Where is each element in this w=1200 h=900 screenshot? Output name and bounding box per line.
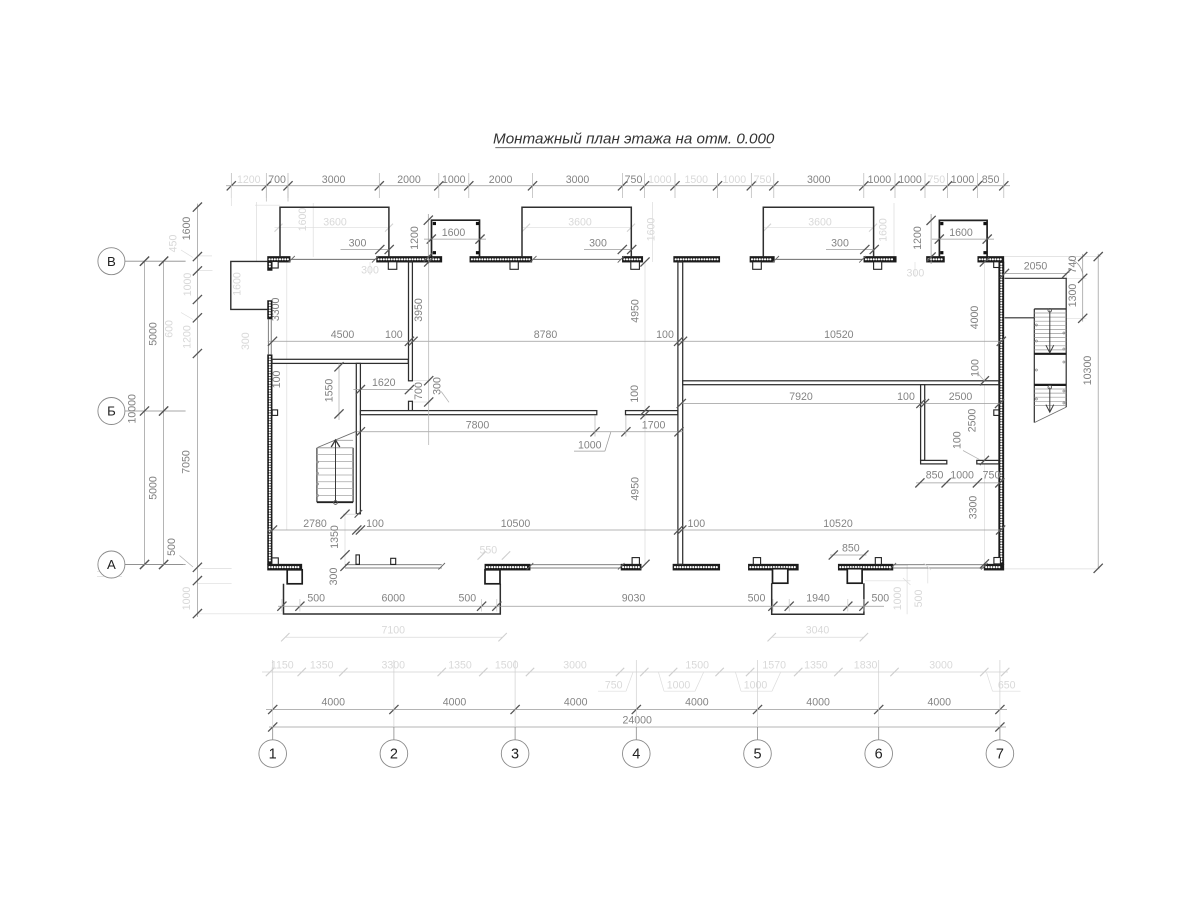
svg-text:500: 500 bbox=[458, 592, 476, 604]
svg-text:1600: 1600 bbox=[646, 218, 658, 242]
svg-text:5000: 5000 bbox=[147, 476, 159, 500]
svg-text:1350: 1350 bbox=[804, 660, 828, 672]
svg-text:1600: 1600 bbox=[297, 208, 309, 232]
svg-text:500: 500 bbox=[871, 592, 889, 604]
svg-text:3040: 3040 bbox=[806, 625, 830, 637]
svg-text:100: 100 bbox=[969, 359, 981, 377]
svg-text:500: 500 bbox=[307, 592, 325, 604]
svg-text:300: 300 bbox=[907, 267, 925, 279]
svg-text:4000: 4000 bbox=[443, 696, 467, 708]
svg-text:100: 100 bbox=[687, 518, 705, 530]
svg-text:7: 7 bbox=[996, 747, 1004, 763]
svg-text:1600: 1600 bbox=[181, 217, 193, 241]
svg-text:1830: 1830 bbox=[854, 660, 878, 672]
svg-text:740: 740 bbox=[1067, 256, 1079, 274]
svg-text:650: 650 bbox=[998, 680, 1016, 692]
svg-text:4950: 4950 bbox=[630, 477, 642, 501]
svg-text:4000: 4000 bbox=[564, 696, 588, 708]
svg-text:1300: 1300 bbox=[1067, 284, 1079, 308]
svg-text:1200: 1200 bbox=[409, 226, 421, 250]
svg-text:1200: 1200 bbox=[237, 174, 261, 186]
svg-text:1350: 1350 bbox=[329, 525, 341, 549]
svg-text:1350: 1350 bbox=[448, 660, 472, 672]
svg-text:1940: 1940 bbox=[806, 592, 830, 604]
svg-text:1000: 1000 bbox=[950, 469, 974, 481]
svg-text:1150: 1150 bbox=[271, 660, 294, 672]
svg-text:7800: 7800 bbox=[466, 420, 490, 432]
svg-text:100: 100 bbox=[271, 370, 283, 388]
svg-text:5000: 5000 bbox=[147, 322, 159, 346]
svg-text:10520: 10520 bbox=[823, 518, 853, 530]
svg-text:100: 100 bbox=[656, 329, 674, 341]
svg-text:2000: 2000 bbox=[397, 174, 421, 186]
svg-text:9030: 9030 bbox=[622, 592, 646, 604]
svg-text:2: 2 bbox=[390, 747, 398, 763]
svg-text:1000: 1000 bbox=[744, 680, 768, 692]
svg-text:5: 5 bbox=[753, 747, 761, 763]
svg-text:Б: Б bbox=[107, 404, 116, 419]
svg-text:2000: 2000 bbox=[489, 174, 513, 186]
svg-text:1: 1 bbox=[269, 747, 277, 763]
svg-text:750: 750 bbox=[754, 174, 772, 186]
svg-text:2500: 2500 bbox=[949, 391, 973, 403]
svg-text:3300: 3300 bbox=[967, 496, 979, 520]
svg-text:1600: 1600 bbox=[232, 272, 244, 296]
svg-text:3000: 3000 bbox=[929, 660, 953, 672]
svg-text:1500: 1500 bbox=[685, 174, 709, 186]
svg-text:3600: 3600 bbox=[808, 216, 832, 228]
svg-text:1000: 1000 bbox=[648, 174, 672, 186]
svg-text:300: 300 bbox=[349, 237, 367, 249]
svg-text:1200: 1200 bbox=[912, 226, 924, 250]
svg-text:1000: 1000 bbox=[898, 174, 922, 186]
svg-text:1350: 1350 bbox=[310, 660, 334, 672]
svg-text:850: 850 bbox=[842, 542, 860, 554]
svg-text:1000: 1000 bbox=[182, 273, 194, 297]
svg-text:1550: 1550 bbox=[323, 379, 335, 403]
svg-text:300: 300 bbox=[240, 332, 252, 350]
svg-text:750: 750 bbox=[605, 680, 623, 692]
svg-text:1000: 1000 bbox=[951, 174, 975, 186]
svg-text:3000: 3000 bbox=[566, 174, 590, 186]
svg-text:100: 100 bbox=[897, 391, 915, 403]
svg-text:4: 4 bbox=[632, 747, 640, 763]
svg-text:1000: 1000 bbox=[723, 174, 747, 186]
svg-text:1000: 1000 bbox=[868, 174, 892, 186]
svg-text:4000: 4000 bbox=[322, 696, 346, 708]
svg-text:500: 500 bbox=[748, 592, 766, 604]
svg-text:3: 3 bbox=[511, 747, 519, 763]
svg-text:500: 500 bbox=[913, 590, 925, 608]
svg-text:2500: 2500 bbox=[967, 409, 979, 433]
svg-text:1700: 1700 bbox=[642, 419, 666, 431]
svg-text:1600: 1600 bbox=[949, 227, 973, 239]
svg-text:4000: 4000 bbox=[685, 696, 709, 708]
svg-text:7050: 7050 bbox=[181, 450, 193, 474]
svg-text:7920: 7920 bbox=[789, 391, 813, 403]
svg-text:600: 600 bbox=[164, 320, 176, 338]
svg-text:1620: 1620 bbox=[372, 377, 396, 389]
svg-text:700: 700 bbox=[268, 174, 286, 186]
svg-text:3000: 3000 bbox=[563, 660, 587, 672]
svg-text:10520: 10520 bbox=[824, 329, 854, 341]
svg-text:100: 100 bbox=[952, 431, 964, 449]
svg-text:10000: 10000 bbox=[127, 394, 139, 424]
svg-text:850: 850 bbox=[926, 469, 944, 481]
svg-text:1200: 1200 bbox=[181, 325, 193, 349]
svg-text:750: 750 bbox=[927, 174, 945, 186]
svg-text:100: 100 bbox=[629, 385, 641, 403]
svg-text:1600: 1600 bbox=[442, 227, 466, 239]
svg-text:4000: 4000 bbox=[969, 306, 981, 330]
svg-text:7100: 7100 bbox=[382, 625, 406, 637]
svg-text:3000: 3000 bbox=[322, 174, 346, 186]
svg-text:8780: 8780 bbox=[534, 329, 558, 341]
svg-text:300: 300 bbox=[589, 237, 607, 249]
svg-text:300: 300 bbox=[328, 568, 340, 586]
svg-text:4500: 4500 bbox=[331, 329, 355, 341]
svg-text:750: 750 bbox=[625, 174, 643, 186]
svg-text:3600: 3600 bbox=[323, 216, 347, 228]
svg-text:700: 700 bbox=[413, 382, 425, 400]
svg-text:850: 850 bbox=[982, 174, 1000, 186]
svg-text:Монтажный план этажа на отм. 0: Монтажный план этажа на отм. 0.000 bbox=[493, 130, 775, 147]
svg-text:100: 100 bbox=[385, 329, 403, 341]
svg-text:6: 6 bbox=[875, 747, 883, 763]
svg-text:1000: 1000 bbox=[181, 587, 193, 611]
svg-text:6000: 6000 bbox=[382, 592, 406, 604]
svg-text:2050: 2050 bbox=[1024, 260, 1048, 272]
svg-text:4000: 4000 bbox=[806, 696, 830, 708]
svg-text:24000: 24000 bbox=[622, 715, 652, 727]
svg-text:3600: 3600 bbox=[568, 216, 592, 228]
svg-text:100: 100 bbox=[366, 518, 384, 530]
svg-text:1000: 1000 bbox=[667, 680, 691, 692]
svg-text:300: 300 bbox=[831, 237, 849, 249]
svg-text:1000: 1000 bbox=[892, 587, 904, 611]
svg-text:4000: 4000 bbox=[928, 696, 952, 708]
svg-text:750: 750 bbox=[983, 469, 1001, 481]
svg-text:10500: 10500 bbox=[501, 518, 531, 530]
svg-text:А: А bbox=[107, 557, 116, 572]
svg-text:2780: 2780 bbox=[303, 518, 327, 530]
svg-text:В: В bbox=[107, 254, 116, 269]
svg-text:1570: 1570 bbox=[762, 660, 786, 672]
svg-text:4950: 4950 bbox=[630, 299, 642, 323]
svg-text:3300: 3300 bbox=[382, 660, 406, 672]
svg-text:10300: 10300 bbox=[1082, 356, 1094, 386]
svg-text:450: 450 bbox=[168, 235, 180, 253]
svg-text:1500: 1500 bbox=[685, 660, 709, 672]
svg-text:3000: 3000 bbox=[807, 174, 831, 186]
svg-text:3950: 3950 bbox=[413, 298, 425, 322]
svg-text:500: 500 bbox=[166, 538, 178, 556]
svg-text:1000: 1000 bbox=[578, 439, 602, 451]
svg-text:1600: 1600 bbox=[877, 218, 889, 242]
svg-text:1000: 1000 bbox=[442, 174, 466, 186]
